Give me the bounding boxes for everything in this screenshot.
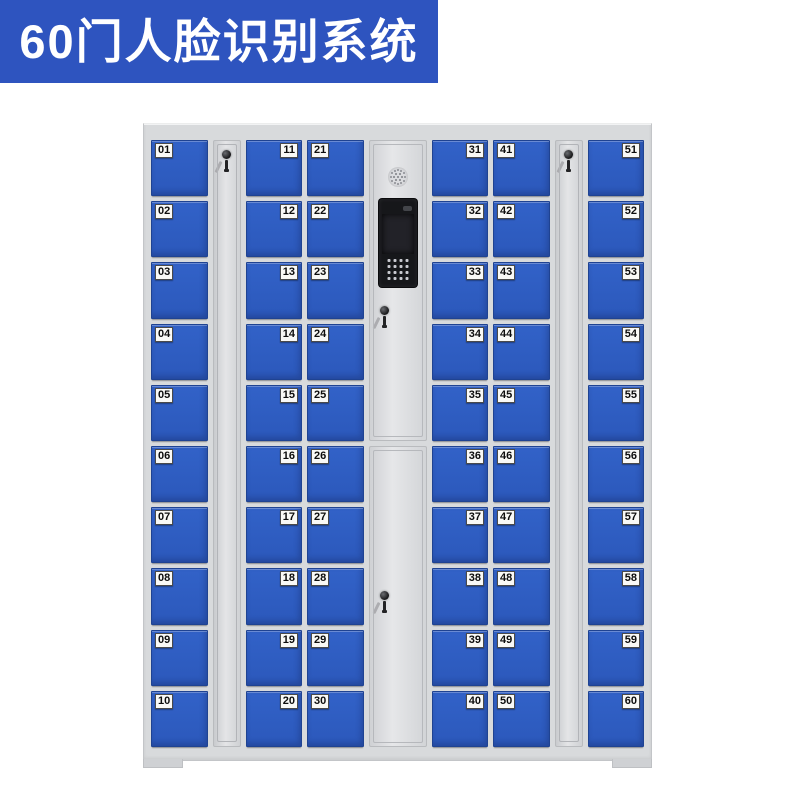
locker-door[interactable]: 37 bbox=[432, 507, 489, 563]
locker-door[interactable]: 23 bbox=[307, 262, 364, 318]
locker-door[interactable]: 41 bbox=[493, 140, 550, 196]
door-number-label: 45 bbox=[497, 388, 515, 403]
door-number-label: 06 bbox=[155, 449, 173, 464]
locker-door[interactable]: 28 bbox=[307, 568, 364, 624]
locker-door[interactable]: 04 bbox=[151, 324, 208, 380]
service-door-lock[interactable] bbox=[379, 591, 391, 612]
key-icon bbox=[383, 601, 386, 612]
lock-keyhole-icon bbox=[380, 591, 389, 600]
control-door-lock[interactable] bbox=[379, 306, 391, 327]
door-number-label: 05 bbox=[155, 388, 173, 403]
locker-door-column: 21222324252627282930 bbox=[307, 140, 364, 747]
page: 60门人脸识别系统 010203040506070809101112131415… bbox=[0, 0, 800, 800]
door-number-label: 33 bbox=[466, 265, 484, 280]
door-number-label: 28 bbox=[311, 571, 329, 586]
locker-door[interactable]: 03 bbox=[151, 262, 208, 318]
door-number-label: 41 bbox=[497, 143, 515, 158]
locker-door[interactable]: 60 bbox=[588, 691, 645, 747]
door-number-label: 51 bbox=[622, 143, 640, 158]
locker-door[interactable]: 19 bbox=[246, 630, 303, 686]
door-number-label: 13 bbox=[280, 265, 298, 280]
keypad-button[interactable] bbox=[399, 265, 402, 268]
locker-door[interactable]: 25 bbox=[307, 385, 364, 441]
locker-door[interactable]: 08 bbox=[151, 568, 208, 624]
locker-door[interactable]: 33 bbox=[432, 262, 489, 318]
locker-door[interactable]: 30 bbox=[307, 691, 364, 747]
master-key-lock[interactable] bbox=[563, 150, 575, 171]
door-number-label: 25 bbox=[311, 388, 329, 403]
keypad-button[interactable] bbox=[399, 259, 402, 262]
locker-door[interactable]: 14 bbox=[246, 324, 303, 380]
door-number-label: 39 bbox=[466, 633, 484, 648]
locker-door[interactable]: 01 bbox=[151, 140, 208, 196]
door-number-label: 04 bbox=[155, 327, 173, 342]
locker-door[interactable]: 39 bbox=[432, 630, 489, 686]
locker-door[interactable]: 17 bbox=[246, 507, 303, 563]
title-banner: 60门人脸识别系统 bbox=[0, 0, 438, 83]
door-number-label: 53 bbox=[622, 265, 640, 280]
door-number-label: 44 bbox=[497, 327, 515, 342]
key-icon bbox=[372, 317, 380, 329]
keypad-button[interactable] bbox=[405, 271, 408, 274]
locker-door[interactable]: 07 bbox=[151, 507, 208, 563]
door-number-label: 58 bbox=[622, 571, 640, 586]
cabinet-foot-right bbox=[612, 759, 652, 768]
keypad-button[interactable] bbox=[393, 259, 396, 262]
key-icon bbox=[567, 160, 570, 171]
door-number-label: 60 bbox=[622, 694, 640, 709]
door-number-label: 23 bbox=[311, 265, 329, 280]
door-number-label: 08 bbox=[155, 571, 173, 586]
door-number-label: 30 bbox=[311, 694, 329, 709]
speaker-holes bbox=[397, 176, 399, 178]
locker-door-column: 01020304050607080910 bbox=[151, 140, 208, 747]
cabinet-columns: 0102030405060708091011121314151617181920… bbox=[151, 140, 644, 747]
keypad-button[interactable] bbox=[387, 271, 390, 274]
locker-door[interactable]: 35 bbox=[432, 385, 489, 441]
door-number-label: 55 bbox=[622, 388, 640, 403]
door-number-label: 15 bbox=[280, 388, 298, 403]
door-number-label: 22 bbox=[311, 204, 329, 219]
locker-door-column: 31323334353637383940 bbox=[432, 140, 489, 747]
key-icon bbox=[214, 161, 222, 173]
keypad-button[interactable] bbox=[387, 277, 390, 280]
door-number-label: 49 bbox=[497, 633, 515, 648]
service-door[interactable] bbox=[369, 446, 427, 747]
control-panel-door[interactable] bbox=[369, 140, 427, 441]
lock-keyhole-icon bbox=[380, 306, 389, 315]
door-number-label: 09 bbox=[155, 633, 173, 648]
locker-door[interactable]: 54 bbox=[588, 324, 645, 380]
door-number-label: 57 bbox=[622, 510, 640, 525]
locker-door[interactable]: 45 bbox=[493, 385, 550, 441]
locker-door[interactable]: 48 bbox=[493, 568, 550, 624]
door-number-label: 19 bbox=[280, 633, 298, 648]
speaker-grille-icon bbox=[388, 167, 408, 187]
locker-door[interactable]: 51 bbox=[588, 140, 645, 196]
keypad-button[interactable] bbox=[393, 265, 396, 268]
keypad-button[interactable] bbox=[393, 271, 396, 274]
door-number-label: 16 bbox=[280, 449, 298, 464]
keypad-button[interactable] bbox=[405, 259, 408, 262]
door-number-label: 59 bbox=[622, 633, 640, 648]
door-number-label: 47 bbox=[497, 510, 515, 525]
locker-door[interactable]: 55 bbox=[588, 385, 645, 441]
keypad-button[interactable] bbox=[405, 265, 408, 268]
screen-display bbox=[382, 214, 414, 254]
face-recognition-panel[interactable] bbox=[379, 199, 417, 287]
key-icon bbox=[372, 602, 380, 614]
keypad-button[interactable] bbox=[393, 277, 396, 280]
locker-door[interactable]: 53 bbox=[588, 262, 645, 318]
side-lock-panel bbox=[555, 140, 583, 747]
door-number-label: 46 bbox=[497, 449, 515, 464]
locker-door[interactable]: 13 bbox=[246, 262, 303, 318]
locker-door[interactable]: 18 bbox=[246, 568, 303, 624]
locker-door[interactable]: 46 bbox=[493, 446, 550, 502]
door-number-label: 36 bbox=[466, 449, 484, 464]
locker-door[interactable]: 06 bbox=[151, 446, 208, 502]
locker-door[interactable]: 16 bbox=[246, 446, 303, 502]
door-number-label: 43 bbox=[497, 265, 515, 280]
locker-door-column: 51525354555657585960 bbox=[588, 140, 645, 747]
locker-door[interactable]: 32 bbox=[432, 201, 489, 257]
locker-door[interactable]: 42 bbox=[493, 201, 550, 257]
locker-door[interactable]: 57 bbox=[588, 507, 645, 563]
door-number-label: 38 bbox=[466, 571, 484, 586]
banner-title: 60门人脸识别系统 bbox=[19, 18, 418, 65]
locker-door[interactable]: 47 bbox=[493, 507, 550, 563]
control-column bbox=[369, 140, 427, 747]
locker-door[interactable]: 21 bbox=[307, 140, 364, 196]
door-number-label: 11 bbox=[280, 143, 298, 158]
door-number-label: 54 bbox=[622, 327, 640, 342]
keypad-button[interactable] bbox=[387, 265, 390, 268]
keypad-button[interactable] bbox=[399, 271, 402, 274]
lock-keyhole-icon bbox=[564, 150, 573, 159]
camera-lens-icon bbox=[403, 206, 412, 211]
keypad-button[interactable] bbox=[387, 259, 390, 262]
locker-door[interactable]: 56 bbox=[588, 446, 645, 502]
locker-door[interactable]: 43 bbox=[493, 262, 550, 318]
door-number-label: 27 bbox=[311, 510, 329, 525]
locker-door[interactable]: 26 bbox=[307, 446, 364, 502]
locker-door[interactable]: 58 bbox=[588, 568, 645, 624]
door-number-label: 12 bbox=[280, 204, 298, 219]
side-lock-panel bbox=[213, 140, 241, 747]
locker-door[interactable]: 49 bbox=[493, 630, 550, 686]
door-number-label: 14 bbox=[280, 327, 298, 342]
locker-door[interactable]: 34 bbox=[432, 324, 489, 380]
door-number-label: 32 bbox=[466, 204, 484, 219]
door-number-label: 35 bbox=[466, 388, 484, 403]
door-number-label: 34 bbox=[466, 327, 484, 342]
door-number-label: 20 bbox=[280, 694, 298, 709]
locker-door[interactable]: 20 bbox=[246, 691, 303, 747]
locker-door[interactable]: 50 bbox=[493, 691, 550, 747]
locker-door[interactable]: 11 bbox=[246, 140, 303, 196]
locker-door[interactable]: 10 bbox=[151, 691, 208, 747]
locker-door[interactable]: 09 bbox=[151, 630, 208, 686]
door-number-label: 24 bbox=[311, 327, 329, 342]
door-number-label: 03 bbox=[155, 265, 173, 280]
door-number-label: 02 bbox=[155, 204, 173, 219]
locker-door[interactable]: 29 bbox=[307, 630, 364, 686]
door-number-label: 42 bbox=[497, 204, 515, 219]
keypad-button[interactable] bbox=[399, 277, 402, 280]
door-number-label: 01 bbox=[155, 143, 173, 158]
locker-door[interactable]: 15 bbox=[246, 385, 303, 441]
door-number-label: 50 bbox=[497, 694, 515, 709]
locker-cabinet: 0102030405060708091011121314151617181920… bbox=[143, 123, 652, 761]
locker-door[interactable]: 52 bbox=[588, 201, 645, 257]
cabinet-foot-left bbox=[143, 759, 183, 768]
door-number-label: 26 bbox=[311, 449, 329, 464]
locker-door[interactable]: 27 bbox=[307, 507, 364, 563]
locker-door[interactable]: 59 bbox=[588, 630, 645, 686]
locker-door[interactable]: 44 bbox=[493, 324, 550, 380]
door-number-label: 52 bbox=[622, 204, 640, 219]
master-key-lock[interactable] bbox=[221, 150, 233, 171]
locker-door[interactable]: 12 bbox=[246, 201, 303, 257]
keypad-button[interactable] bbox=[405, 277, 408, 280]
lock-keyhole-icon bbox=[222, 150, 231, 159]
door-number-label: 56 bbox=[622, 449, 640, 464]
locker-door[interactable]: 05 bbox=[151, 385, 208, 441]
locker-door[interactable]: 38 bbox=[432, 568, 489, 624]
locker-door-column: 41424344454647484950 bbox=[493, 140, 550, 747]
door-number-label: 07 bbox=[155, 510, 173, 525]
key-icon bbox=[383, 316, 386, 327]
door-number-label: 21 bbox=[311, 143, 329, 158]
key-icon bbox=[225, 160, 228, 171]
locker-door[interactable]: 31 bbox=[432, 140, 489, 196]
locker-door[interactable]: 02 bbox=[151, 201, 208, 257]
door-number-label: 40 bbox=[466, 694, 484, 709]
locker-door[interactable]: 24 bbox=[307, 324, 364, 380]
door-number-label: 18 bbox=[280, 571, 298, 586]
door-number-label: 48 bbox=[497, 571, 515, 586]
door-number-label: 37 bbox=[466, 510, 484, 525]
locker-door-column: 11121314151617181920 bbox=[246, 140, 303, 747]
keypad[interactable] bbox=[387, 259, 408, 280]
door-number-label: 31 bbox=[466, 143, 484, 158]
key-icon bbox=[556, 161, 564, 173]
locker-door[interactable]: 40 bbox=[432, 691, 489, 747]
door-number-label: 29 bbox=[311, 633, 329, 648]
locker-door[interactable]: 22 bbox=[307, 201, 364, 257]
door-number-label: 10 bbox=[155, 694, 173, 709]
locker-door[interactable]: 36 bbox=[432, 446, 489, 502]
door-number-label: 17 bbox=[280, 510, 298, 525]
